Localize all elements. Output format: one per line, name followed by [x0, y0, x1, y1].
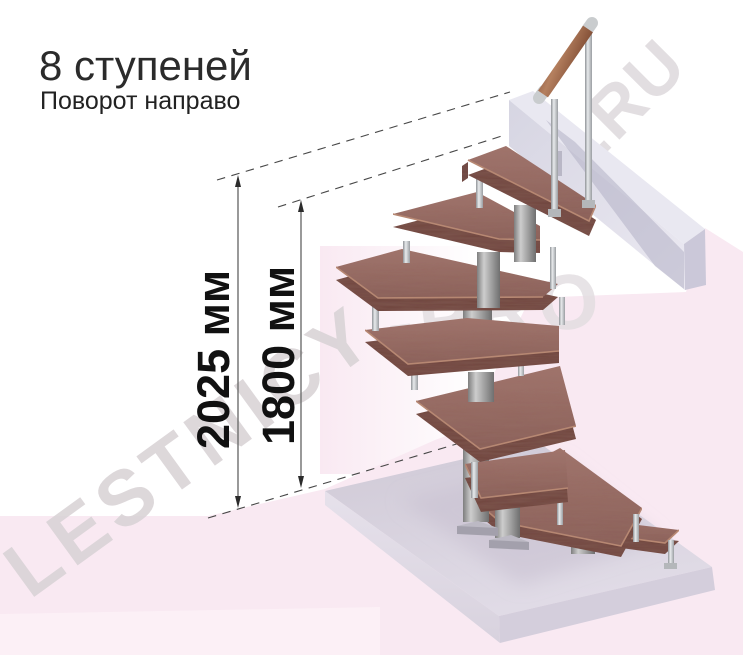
svg-text:8 ступеней: 8 ступеней [39, 42, 252, 89]
svg-text:1800 мм: 1800 мм [253, 266, 304, 445]
svg-text:2025 мм: 2025 мм [188, 270, 239, 449]
svg-text:Поворот направо: Поворот направо [40, 87, 240, 115]
